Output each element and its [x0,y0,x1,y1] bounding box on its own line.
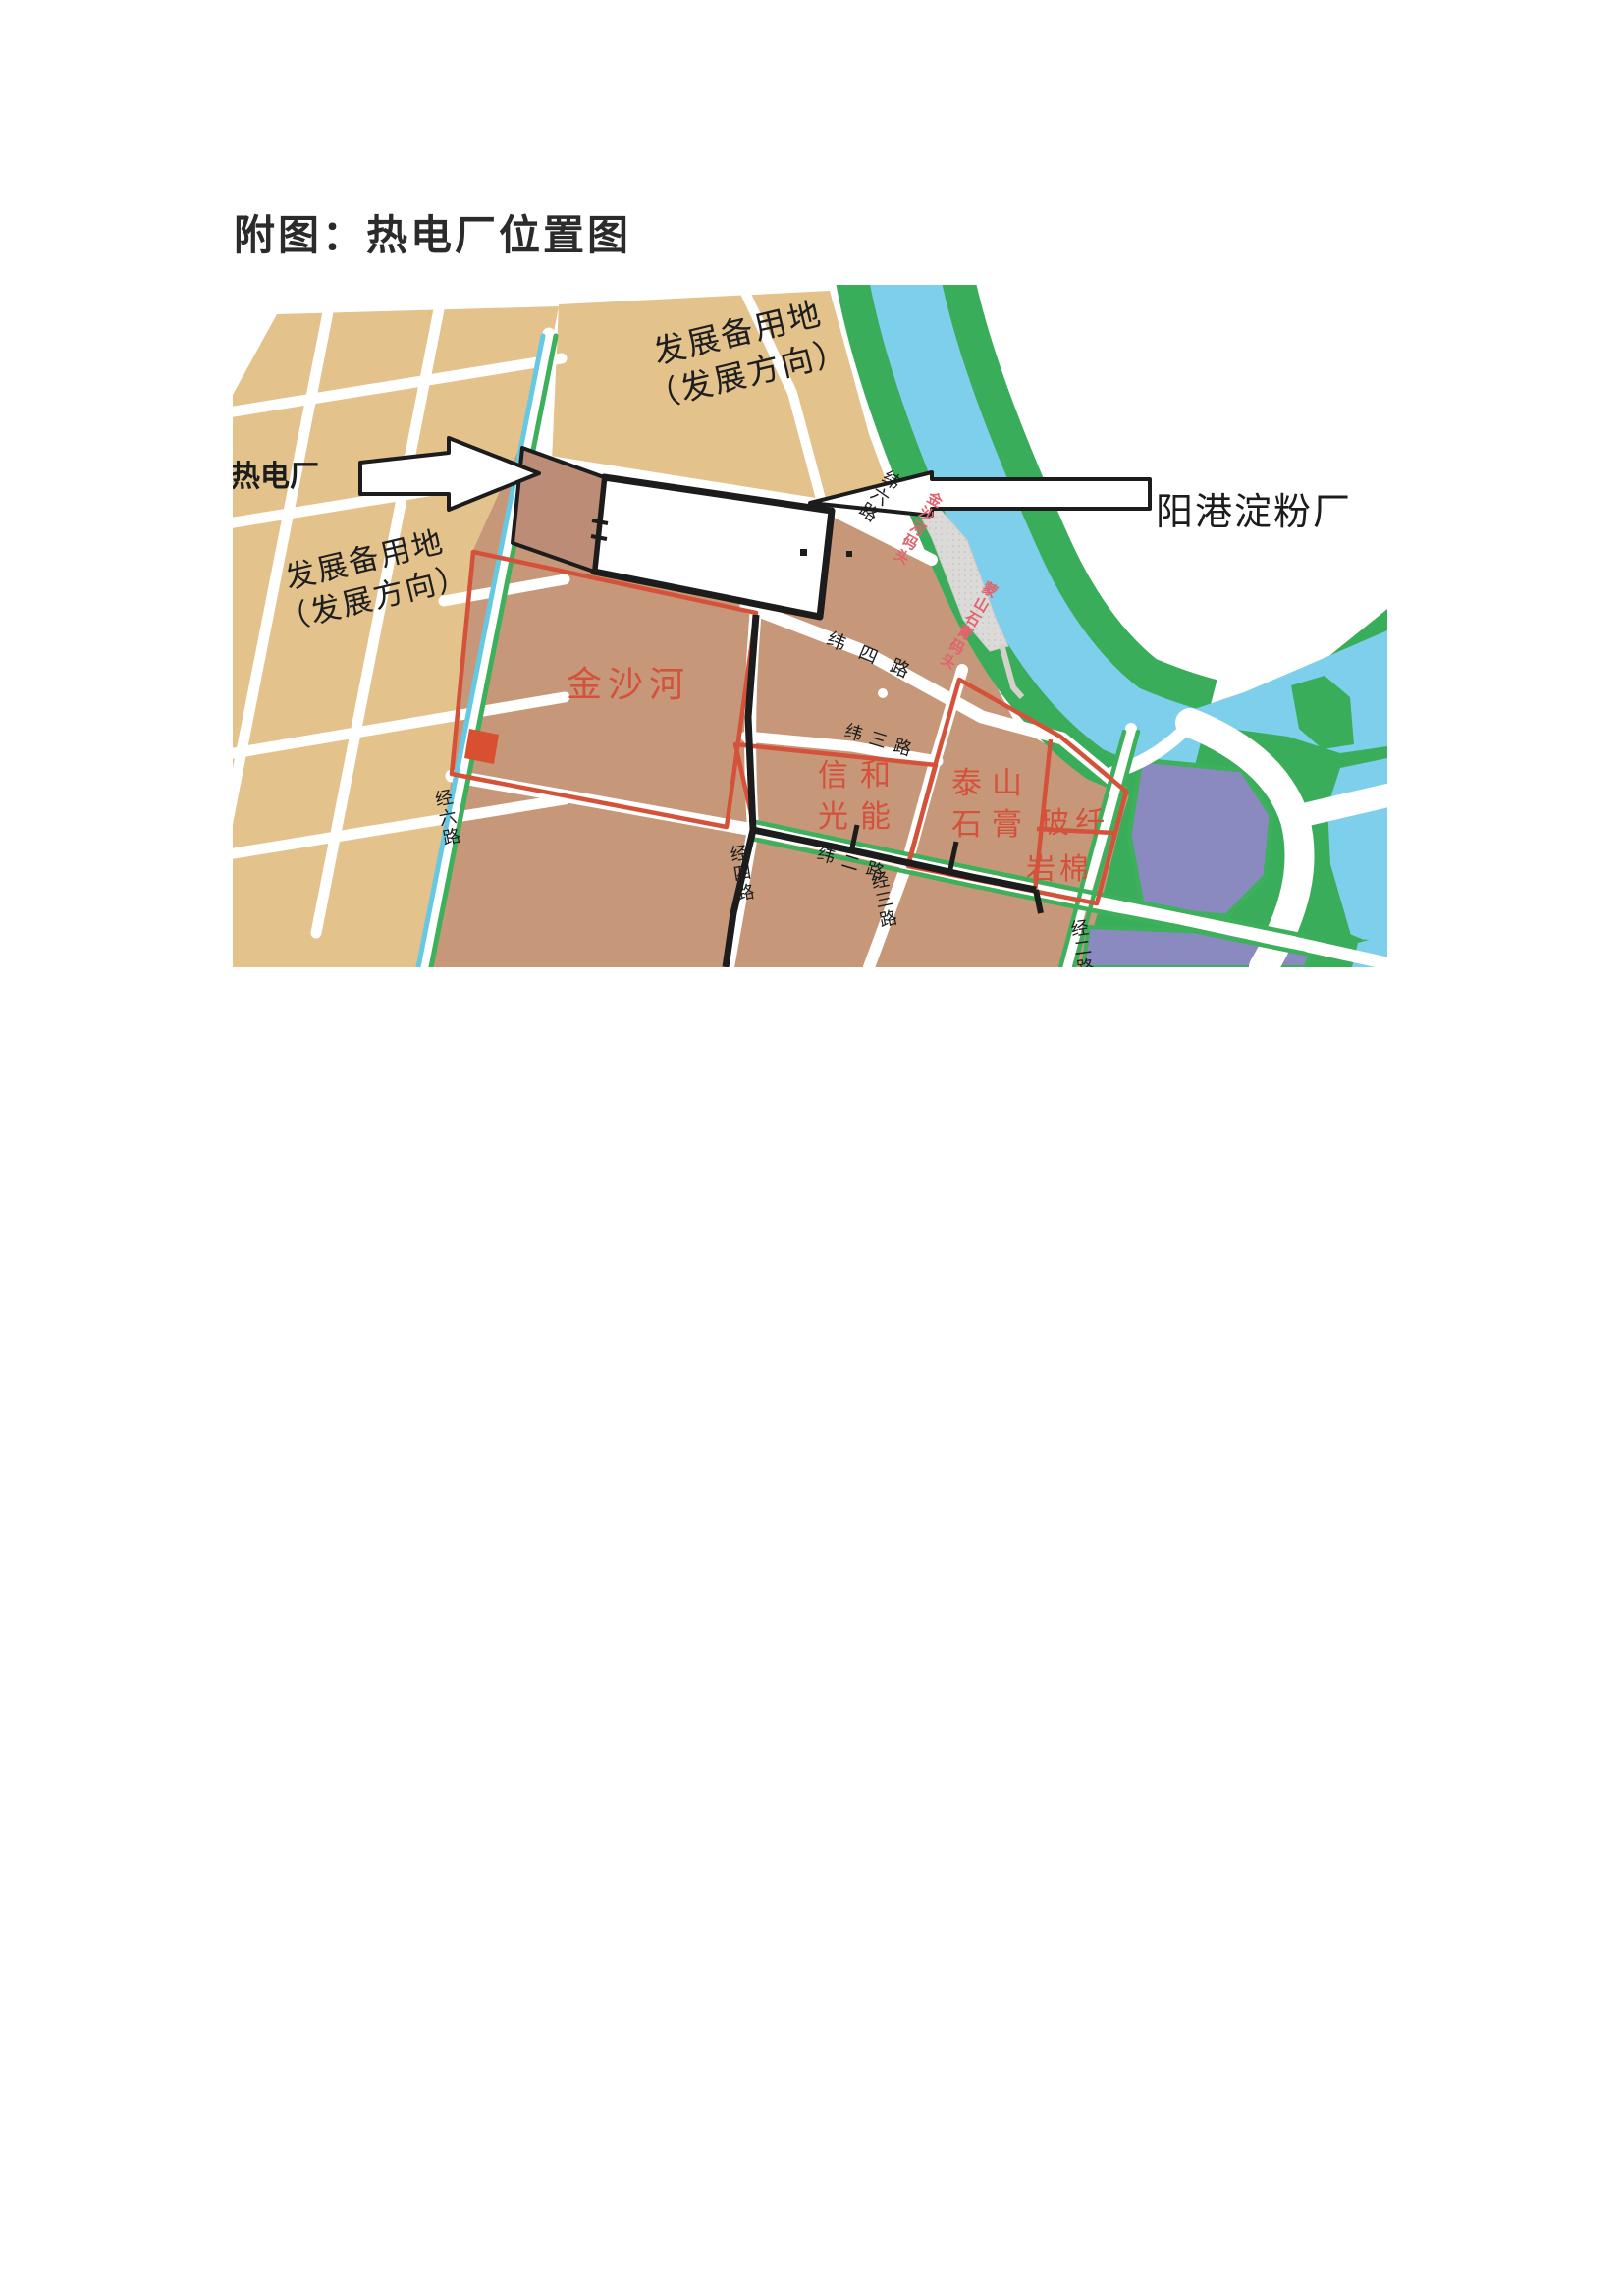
taishan-line2: 石膏 [951,807,1032,843]
xinhe-line2: 光能 [818,799,902,835]
xinhe-label: 信和 光能 [818,756,902,839]
page-title: 附图：热电厂位置图 [234,202,631,262]
plant-location-map: 发展备用地 （发展方向） 发展备用地 （发展方向） 热电厂 阳港淀粉厂 金沙河 … [233,285,1387,967]
starch-factory-callout-label: 阳港淀粉厂 [1156,481,1352,535]
taishan-label: 泰山 石膏 [951,764,1032,847]
taishan-line1: 泰山 [951,766,1032,801]
boxian-label: 玻纤 [1040,798,1110,842]
yanmian-label: 岩棉 [1026,845,1093,888]
scanned-document-page: 附图：热电厂位置图 [0,0,1623,2296]
white-dot [878,688,888,698]
map-dot-2 [846,551,852,557]
plant-callout-label: 热电厂 [233,452,319,495]
jinshahe-label: 金沙河 [567,656,690,707]
red-corner-square [464,729,499,764]
map-dot-1 [800,549,807,556]
xinhe-line1: 信和 [818,758,902,793]
location-map-svg [233,285,1387,967]
purple-parcel-main [1129,760,1271,916]
